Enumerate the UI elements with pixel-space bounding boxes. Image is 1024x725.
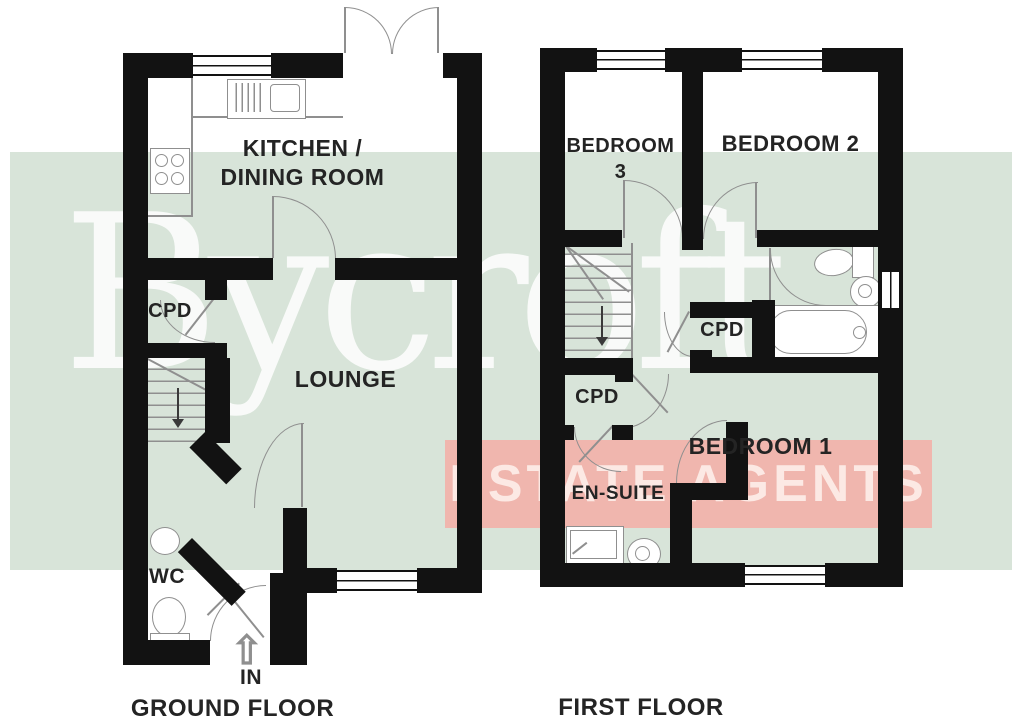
entrance-label: IN [228,666,274,690]
wall [540,48,565,587]
stair-arrow-down [596,337,608,346]
wall [690,350,712,373]
room-label-cpd-landing: CPD [567,386,627,409]
window [337,570,417,591]
kitchen-sink-unit [227,79,306,119]
hob-ring [155,172,168,185]
wall [665,48,742,72]
sink-drainer [231,83,265,112]
stair-direction-line [601,306,603,338]
wall [822,48,903,72]
counter-line [148,215,193,217]
room-label-bedroom3: BEDROOM 3 [553,133,688,185]
hob [150,148,190,194]
french-door-arc [345,7,392,54]
door-leaf [272,196,274,258]
wall [540,425,574,440]
french-door-leaf [437,7,439,53]
wall [283,508,307,593]
basin-drain [858,284,872,298]
bedroom3-label-line1: BEDROOM [553,133,688,159]
wall [123,640,210,665]
wall [540,48,597,72]
room-label-lounge: LOUNGE [288,366,403,393]
window [880,272,901,308]
stair-direction-line [177,388,179,420]
french-door-arc [392,7,439,54]
hob-ring [155,154,168,167]
wc-basin [150,527,180,555]
sink-basin [270,84,300,112]
wall [148,258,273,280]
wall [612,425,633,440]
wall [878,48,903,587]
room-label-bedroom1: BEDROOM 1 [658,433,863,460]
stair-edge-line [631,243,633,358]
room-label-cpd-bathroom: CPD [692,319,752,342]
wall [670,483,692,563]
window [193,55,271,76]
wall [417,568,482,593]
toilet-bowl [152,597,186,637]
wall [335,258,482,280]
wall [457,53,482,593]
bedroom3-label-line2: 3 [553,159,688,185]
floorplan-canvas: Bycroft ESTATE AGENTS [0,0,1024,725]
room-label-kitchen: KITCHEN / DINING ROOM [190,134,415,192]
stairs [148,358,212,443]
room-label-cpd-ground: CPD [144,300,196,323]
kitchen-label-line1: KITCHEN / [190,134,415,163]
floor-title-first: FIRST FLOOR [536,694,746,722]
basin-drain [635,546,650,561]
wall [690,302,712,318]
wall [825,563,903,587]
room-label-wc: WC [141,565,193,589]
window [742,50,822,70]
wall [123,53,193,78]
bath [764,305,879,362]
stair-arrow-down [172,419,184,428]
floor-title-ground: GROUND FLOOR [120,695,345,723]
wall [565,230,622,247]
wall [690,357,878,373]
wall [615,358,633,382]
wall [540,563,745,587]
wall [271,53,343,78]
hob-ring [171,172,184,185]
room-label-ensuite: EN-SUITE [563,483,673,505]
wall [757,230,878,247]
window [597,50,665,70]
toilet-cistern [852,246,874,278]
shower-inner [570,530,617,559]
door-leaf [623,180,625,238]
wall [205,280,227,300]
door-leaf [301,423,303,507]
window [745,565,825,585]
shower-tray [566,526,624,566]
wall [148,343,227,358]
bath-tap [853,326,866,339]
room-label-bedroom2: BEDROOM 2 [703,131,878,157]
wall [205,358,230,443]
hob-ring [171,154,184,167]
french-door-leaf [344,7,346,53]
door-leaf [769,248,771,305]
kitchen-label-line2: DINING ROOM [190,163,415,192]
